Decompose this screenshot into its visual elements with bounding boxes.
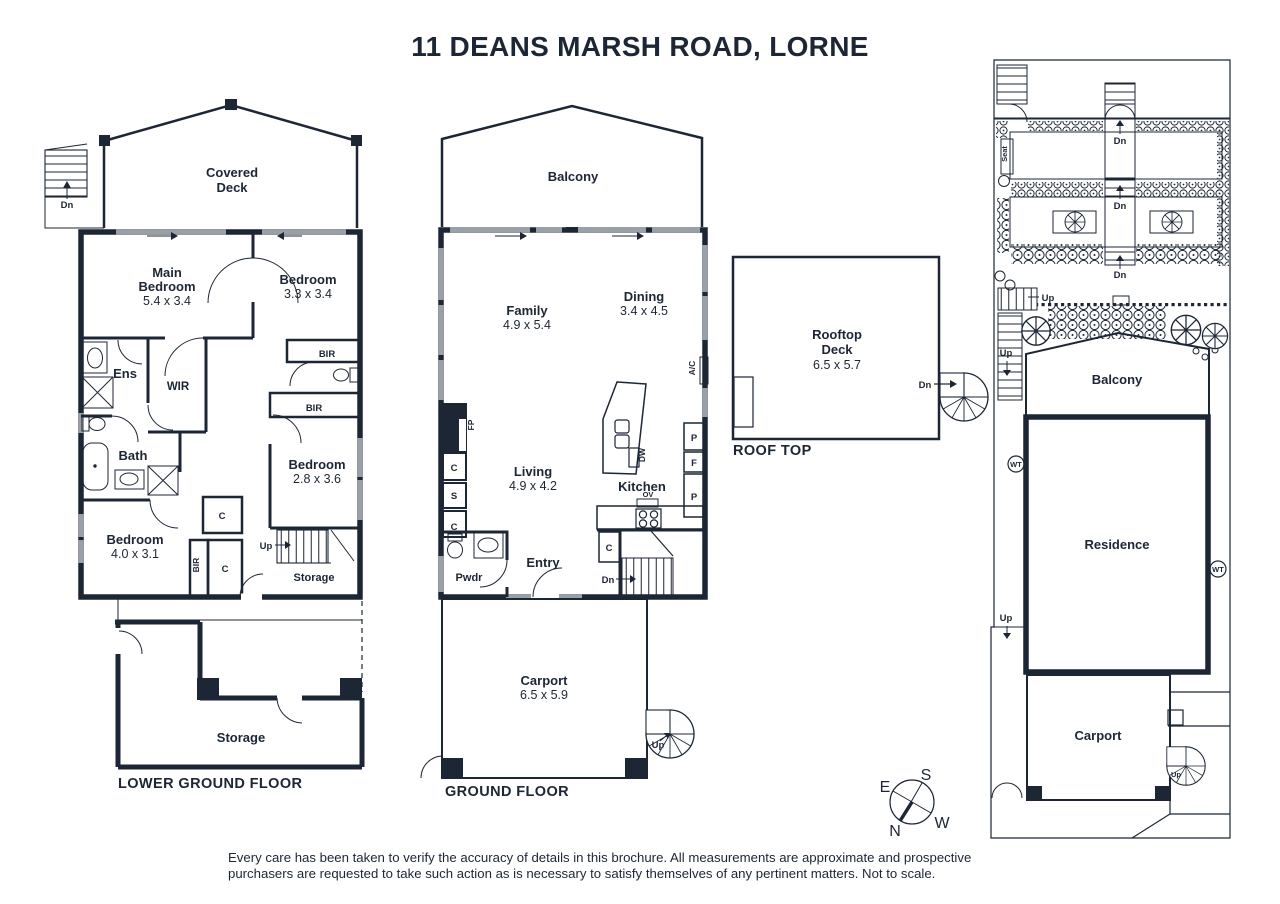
- exterior-stairs-down: Dn: [45, 144, 104, 228]
- main-bedroom-dims: 5.4 x 3.4: [143, 294, 191, 308]
- wir-label: WIR: [167, 381, 190, 393]
- rooftop-deck-label: Rooftop: [812, 327, 862, 342]
- cooktop: [636, 509, 661, 528]
- bir-label: BIR: [319, 349, 336, 360]
- disclaimer-line2: purchasers are requested to take such ac…: [228, 866, 935, 881]
- stairs-down-label: Dn: [602, 575, 615, 586]
- carport-dims: 6.5 x 5.9: [520, 688, 568, 702]
- pantry-label: P: [691, 492, 698, 503]
- site-plan: Seat Dn Dn Dn Up Up Balcony Residence WT…: [991, 60, 1230, 838]
- living-dims: 4.9 x 4.2: [509, 479, 557, 493]
- svg-text:Deck: Deck: [216, 180, 248, 195]
- stairs-down-label: Dn: [1114, 270, 1127, 281]
- page-title: 11 DEANS MARSH ROAD, LORNE: [411, 31, 868, 62]
- shelf-label: S: [451, 491, 457, 502]
- compass-east: E: [880, 779, 891, 796]
- compass-north: N: [889, 823, 901, 840]
- bedroom4-label: Bedroom: [106, 532, 163, 547]
- roof-top-plan: Dn Rooftop Deck 6.5 x 5.7 ROOF TOP: [733, 257, 988, 459]
- cupboard-label: C: [606, 543, 613, 554]
- ground-windows: [439, 227, 708, 600]
- stairs-down-label: Dn: [61, 200, 74, 211]
- water-tank-label: WT: [1212, 565, 1224, 574]
- balcony-outline: [442, 106, 702, 227]
- ensuite-label: Ens: [113, 366, 137, 381]
- storage-label: Storage: [294, 572, 335, 584]
- site-carport-label: Carport: [1075, 728, 1123, 743]
- bedroom3-label: Bedroom: [288, 457, 345, 472]
- spiral-stairs: [940, 373, 988, 421]
- stairs-up-label: Up: [260, 541, 273, 552]
- bedroom3-dims: 2.8 x 3.6: [293, 472, 341, 486]
- bedroom4-dims: 4.0 x 3.1: [111, 547, 159, 561]
- dishwasher-label: DW: [637, 447, 647, 462]
- tree-icon: [1202, 323, 1227, 348]
- seat-label: Seat: [1000, 146, 1009, 162]
- stairs-up-label: Up: [1000, 348, 1013, 359]
- water-tank-label: WT: [1010, 460, 1022, 469]
- carport-label: Carport: [521, 673, 569, 688]
- tree-icon: [1162, 212, 1182, 232]
- site-balcony-label: Balcony: [1092, 372, 1143, 387]
- tree-icon: [1171, 315, 1200, 344]
- ground-unit-outline: [441, 230, 705, 597]
- tree-icon: [1065, 212, 1085, 232]
- stairs-down-label: Dn: [919, 380, 932, 391]
- living-label: Living: [514, 464, 552, 479]
- tree-icon: [1022, 317, 1050, 345]
- residence-label: Residence: [1084, 537, 1149, 552]
- ground-floor-plan: FP C S C Pwdr Entry DW: [421, 106, 708, 800]
- kitchen-label: Kitchen: [618, 479, 666, 494]
- site-top-stairs: [997, 65, 1135, 265]
- entry-label: Entry: [526, 555, 560, 570]
- balcony-label: Balcony: [548, 169, 599, 184]
- family-label: Family: [506, 303, 548, 318]
- stairs-down-label: Dn: [1114, 136, 1127, 147]
- fireplace-label: FP: [466, 419, 476, 430]
- bir-label: BIR: [191, 558, 201, 573]
- lower-ground-floor-plan: Dn: [45, 99, 363, 792]
- stairs-up-label: Up: [652, 740, 665, 751]
- bir-label: BIR: [306, 403, 323, 414]
- powder-label: Pwdr: [456, 572, 484, 584]
- pantry-label: P: [691, 433, 698, 444]
- bedroom2-dims: 3.3 x 3.4: [284, 287, 332, 301]
- ground-stairs-down: Dn: [602, 531, 673, 595]
- svg-text:Bedroom: Bedroom: [138, 279, 195, 294]
- compass-west: W: [934, 815, 950, 832]
- site-carport: Carport: [992, 675, 1170, 800]
- dining-label: Dining: [624, 289, 664, 304]
- stairs-up-label: Up: [1171, 770, 1181, 779]
- bath-label: Bath: [119, 448, 148, 463]
- ac-label: A/C: [687, 361, 697, 376]
- fireplace: FP: [442, 403, 476, 452]
- bedroom2-label: Bedroom: [279, 272, 336, 287]
- family-dims: 4.9 x 5.4: [503, 318, 551, 332]
- powder-room: Pwdr: [442, 532, 507, 597]
- stairs-up-label: Up: [1000, 613, 1013, 624]
- rooftop-deck-dims: 6.5 x 5.7: [813, 358, 861, 372]
- stairs-down-label: Dn: [1114, 201, 1127, 212]
- dining-dims: 3.4 x 4.5: [620, 304, 668, 318]
- svg-text:Deck: Deck: [821, 342, 853, 357]
- main-bedroom-label: Main: [152, 265, 182, 280]
- lower-ground-caption: LOWER GROUND FLOOR: [118, 776, 303, 792]
- disclaimer-line1: Every care has been taken to verify the …: [228, 850, 971, 865]
- storage-lower-label: Storage: [217, 730, 265, 745]
- covered-deck-label: Covered: [206, 165, 258, 180]
- cupboard-label: C: [222, 564, 229, 575]
- fridge-label: F: [691, 458, 697, 469]
- spiral-stairs: [1167, 747, 1205, 785]
- cupboard-label: C: [219, 511, 226, 522]
- floorplan-drawing: 11 DEANS MARSH ROAD, LORNE Dn: [0, 0, 1280, 904]
- compass: S E N W: [880, 767, 951, 840]
- roof-top-caption: ROOF TOP: [733, 443, 812, 459]
- ground-floor-caption: GROUND FLOOR: [445, 784, 569, 800]
- compass-south: S: [921, 767, 932, 784]
- cupboard-label: C: [451, 463, 458, 474]
- floorplan-page: 11 DEANS MARSH ROAD, LORNE Dn: [0, 0, 1280, 904]
